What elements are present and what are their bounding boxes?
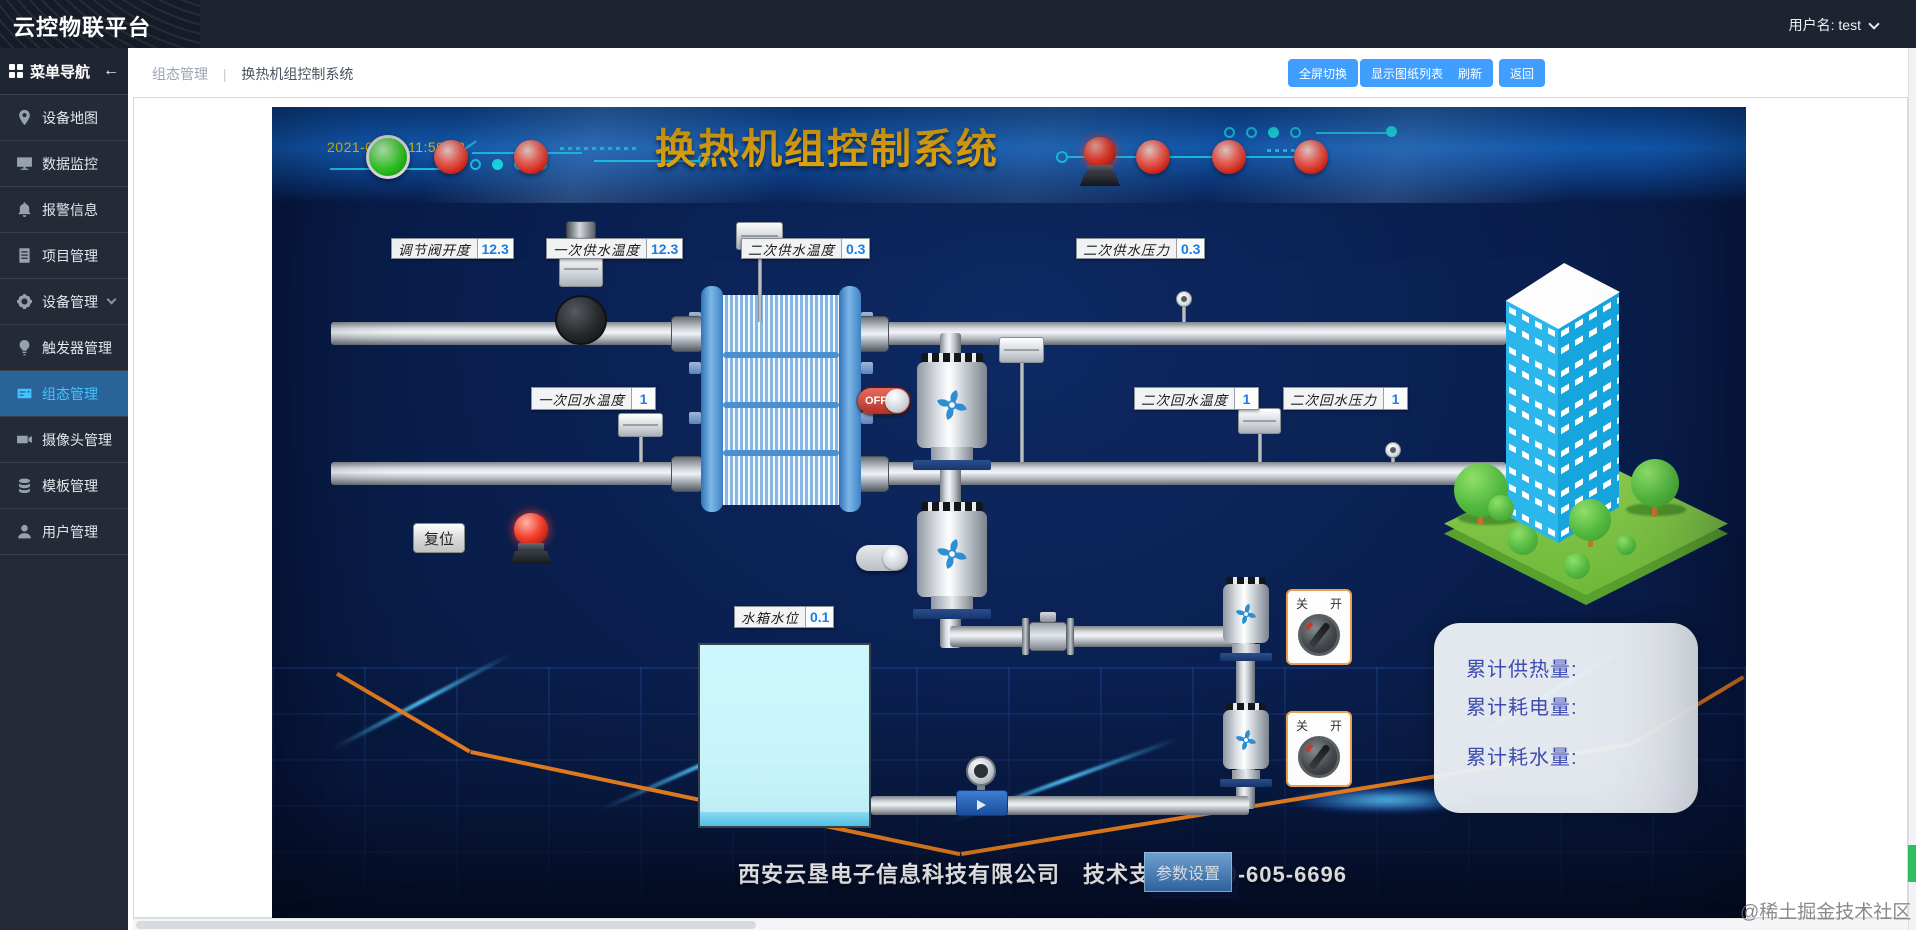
switch-on-label: 开 [1330, 717, 1342, 734]
parameter-settings-button[interactable]: 参数设置 [1144, 852, 1232, 892]
rotary-knob[interactable] [1298, 736, 1340, 778]
breadcrumb: 组态管理 | 换热机组控制系统 [152, 64, 353, 84]
sidebar-item-label: 组态管理 [42, 384, 98, 404]
exchanger-nub [689, 412, 701, 424]
sensor-label: 二次回水温度 [1135, 388, 1234, 409]
user-label: 用户名: test [1789, 15, 1861, 35]
sidebar-item-label: 摄像头管理 [42, 430, 112, 450]
breadcrumb-current: 换热机组控制系统 [241, 66, 353, 82]
alarm-light [1136, 140, 1170, 174]
control-valve-body [555, 295, 607, 345]
app-logo: 云控物联平台 [13, 10, 151, 42]
sidebar-item-label: 设备管理 [42, 292, 98, 312]
sensor-pole [1182, 307, 1186, 322]
sensor-device [1238, 408, 1281, 434]
circulation-pump-2 [917, 502, 987, 619]
sensor-device [999, 337, 1044, 363]
total-water-label: 累计耗水量: [1466, 741, 1578, 770]
circuit-node [1290, 127, 1301, 138]
sensor-tank-level: 水箱水位 0.1 [734, 606, 834, 628]
sensor-label: 二次供水温度 [742, 239, 841, 258]
vertical-scrollbar-thumb[interactable] [1908, 845, 1916, 882]
circuit-node [1246, 127, 1257, 138]
sensor-value: 12.3 [477, 239, 513, 258]
breadcrumb-parent[interactable]: 组态管理 [152, 66, 208, 82]
sidebar-item-device-map[interactable]: 设备地图 [0, 95, 128, 141]
pressure-gauge [1385, 442, 1401, 458]
circuit-node [1268, 127, 1279, 138]
user-menu[interactable]: 用户名: test [1789, 15, 1878, 35]
circuit-node [1386, 126, 1397, 137]
circuit-line [1316, 132, 1388, 134]
submenu-chevron-icon [107, 295, 117, 305]
circulation-pump-1 [917, 353, 987, 470]
sensor-supply1-temp: 一次供水温度 12.3 [546, 238, 683, 259]
sensor-pole [1258, 434, 1262, 462]
circuit-node [1056, 151, 1068, 163]
switch-off-label: 关 [1296, 595, 1308, 612]
map-pin-icon [16, 109, 33, 126]
tree [1564, 553, 1590, 579]
tree [1508, 525, 1538, 555]
heat-exchanger-frame-left [701, 286, 723, 512]
switch-off-label: 关 [1296, 717, 1308, 734]
sidebar-item-scada-mgmt[interactable]: 组态管理 [0, 371, 128, 417]
pump-toggle-2[interactable] [856, 545, 908, 571]
circuit-node [1224, 127, 1235, 138]
sidebar-item-label: 触发器管理 [42, 338, 112, 358]
exchanger-coupling [671, 316, 703, 352]
sensor-supply2-press: 二次供水压力 0.3 [1076, 238, 1205, 259]
tree [1488, 495, 1514, 521]
rotary-switch-1[interactable]: 关 开 [1286, 589, 1352, 665]
heat-exchanger-plates [723, 295, 839, 505]
sensor-return2-temp: 二次回水温度 1 [1134, 387, 1259, 410]
trigger-bulb-icon [16, 339, 33, 356]
sensor-value: 0.1 [805, 607, 833, 627]
sensor-device [618, 413, 663, 437]
impeller-icon [933, 386, 971, 424]
chevron-down-icon [1868, 18, 1879, 29]
alarm-light [514, 140, 548, 174]
canvas-container: 2021-09-07 11:59:28 换热机组控制系统 [133, 97, 1908, 918]
switch-on-label: 开 [1330, 595, 1342, 612]
circuit-node [470, 159, 481, 170]
breadcrumb-bar: 组态管理 | 换热机组控制系统 全屏切换 显示图纸列表 刷新 返回 [128, 48, 1916, 97]
project-icon [16, 247, 33, 264]
sensor-pole [1391, 458, 1395, 462]
exchanger-coupling [857, 456, 889, 492]
breadcrumb-separator: | [223, 66, 227, 82]
sensor-label: 一次回水温度 [532, 388, 631, 409]
pressure-gauge [1176, 291, 1192, 307]
app-header: 云控物联平台 用户名: test [0, 0, 1916, 48]
impeller-icon [1233, 601, 1259, 627]
circuit-dashes [560, 147, 640, 150]
tree [1569, 499, 1611, 541]
impeller-icon [933, 535, 971, 573]
impeller-icon [1233, 727, 1259, 753]
tank-water-level [700, 812, 869, 826]
sensor-pole [1020, 363, 1024, 462]
company-support-text: 西安云垦电子信息科技有限公司 技术支持：400-605-6696 [738, 857, 1347, 889]
gate-valve-bonnet [1040, 612, 1056, 622]
tree [1631, 459, 1679, 507]
flow-meter-display [966, 756, 996, 786]
alarm-light [1212, 140, 1246, 174]
toggle-knob [885, 389, 909, 413]
sidebar-item-label: 项目管理 [42, 246, 98, 266]
tree [1616, 535, 1636, 555]
totals-panel: 累计供热量: 累计耗电量: 累计耗水量: [1434, 623, 1698, 813]
sidebar-item-device-mgmt[interactable]: 设备管理 [0, 279, 128, 325]
reset-button[interactable]: 复位 [413, 523, 465, 553]
pump-toggle-off[interactable]: OFF [858, 388, 910, 414]
pipe-supply-top [331, 322, 1506, 345]
sensor-pole [758, 250, 762, 322]
water-tank [698, 643, 871, 828]
vertical-scrollbar[interactable] [1908, 48, 1916, 930]
sidebar-item-label: 报警信息 [42, 200, 98, 220]
sensor-value: 0.3 [841, 239, 869, 258]
valve-flange [1022, 618, 1029, 655]
horizontal-scrollbar-thumb[interactable] [136, 921, 756, 929]
makeup-pump-2 [1223, 703, 1269, 787]
scada-title: 换热机组控制系统 [655, 115, 999, 175]
valve-flange [1067, 618, 1074, 655]
horizontal-scrollbar[interactable] [133, 918, 1908, 930]
total-power-label: 累计耗电量: [1466, 691, 1578, 720]
bell-icon [16, 201, 33, 218]
exchanger-nub [861, 362, 873, 374]
exchanger-coupling [671, 456, 703, 492]
refresh-button[interactable]: 刷新 [1447, 59, 1493, 87]
sidebar-item-label: 设备地图 [42, 108, 98, 128]
gear-icon [16, 293, 33, 310]
sensor-supply2-temp: 二次供水温度 0.3 [741, 238, 870, 259]
sensor-label: 一次供水温度 [547, 239, 646, 258]
circuit-node [492, 159, 503, 170]
sensor-label: 二次供水压力 [1077, 239, 1176, 258]
run-status-light [366, 135, 410, 179]
watermark: @稀土掘金技术社区 [1740, 897, 1911, 924]
makeup-pump-1 [1223, 577, 1269, 661]
sidebar: 菜单导航 ← 设备地图 数据监控 报警信息 项目管理 设备管理 触发器管理 组态… [0, 48, 128, 930]
scada-canvas: 2021-09-07 11:59:28 换热机组控制系统 [272, 107, 1746, 918]
sensor-value: 1 [1234, 388, 1258, 409]
sensor-label: 二次回水压力 [1284, 388, 1383, 409]
alarm-beacon-icon [508, 511, 554, 565]
pipe-tank-outlet [871, 796, 1249, 815]
exchanger-coupling [857, 316, 889, 352]
sidebar-item-data-monitor[interactable]: 数据监控 [0, 141, 128, 187]
sidebar-item-template-mgmt[interactable]: 模板管理 [0, 463, 128, 509]
back-button[interactable]: 返回 [1499, 59, 1545, 87]
sidebar-item-camera-mgmt[interactable]: 摄像头管理 [0, 417, 128, 463]
user-icon [16, 523, 33, 540]
camera-icon [16, 431, 33, 448]
scada-form-icon [16, 385, 33, 402]
banner-decoration [272, 107, 1746, 203]
drawing-list-button[interactable]: 显示图纸列表 [1360, 59, 1454, 87]
sensor-label: 水箱水位 [735, 607, 805, 627]
sidebar-menu-header[interactable]: 菜单导航 ← [0, 48, 128, 95]
sensor-pole [639, 437, 643, 462]
exchanger-divider [723, 402, 839, 408]
alarm-light [434, 140, 468, 174]
alarm-beacon-icon [1078, 135, 1122, 187]
menu-grid-icon [9, 64, 23, 78]
sidebar-item-trigger-mgmt[interactable]: 触发器管理 [0, 325, 128, 371]
toggle-label: OFF [865, 395, 887, 407]
sensor-return1-temp: 一次回水温度 1 [531, 387, 656, 410]
flow-meter-body [956, 790, 1008, 816]
total-heat-label: 累计供热量: [1466, 653, 1578, 682]
menu-title: 菜单导航 [30, 61, 90, 82]
sidebar-item-label: 数据监控 [42, 154, 98, 174]
alarm-light [1294, 140, 1328, 174]
monitor-icon [16, 155, 33, 172]
sidebar-item-label: 用户管理 [42, 522, 98, 542]
template-stack-icon [16, 477, 33, 494]
exchanger-divider [723, 450, 839, 456]
sensor-valve-opening: 调节阀开度 12.3 [391, 238, 514, 259]
sidebar-item-user-mgmt[interactable]: 用户管理 [0, 509, 128, 555]
sidebar-item-label: 模板管理 [42, 476, 98, 496]
exchanger-nub [689, 362, 701, 374]
sidebar-item-project-mgmt[interactable]: 项目管理 [0, 233, 128, 279]
gate-valve-body [1029, 622, 1067, 651]
sensor-value: 0.3 [1176, 239, 1204, 258]
collapse-arrow-icon[interactable]: ← [103, 62, 119, 80]
toggle-knob [883, 546, 907, 570]
sensor-value: 12.3 [646, 239, 682, 258]
pipe-branch-mid [950, 626, 1248, 647]
rotary-knob[interactable] [1298, 614, 1340, 656]
sidebar-item-alarm-info[interactable]: 报警信息 [0, 187, 128, 233]
rotary-switch-2[interactable]: 关 开 [1286, 711, 1352, 787]
fullscreen-button[interactable]: 全屏切换 [1288, 59, 1358, 87]
sensor-label: 调节阀开度 [392, 239, 477, 258]
sensor-value: 1 [631, 388, 655, 409]
exchanger-divider [723, 352, 839, 358]
sensor-return2-press: 二次回水压力 1 [1283, 387, 1408, 410]
sensor-value: 1 [1383, 388, 1407, 409]
